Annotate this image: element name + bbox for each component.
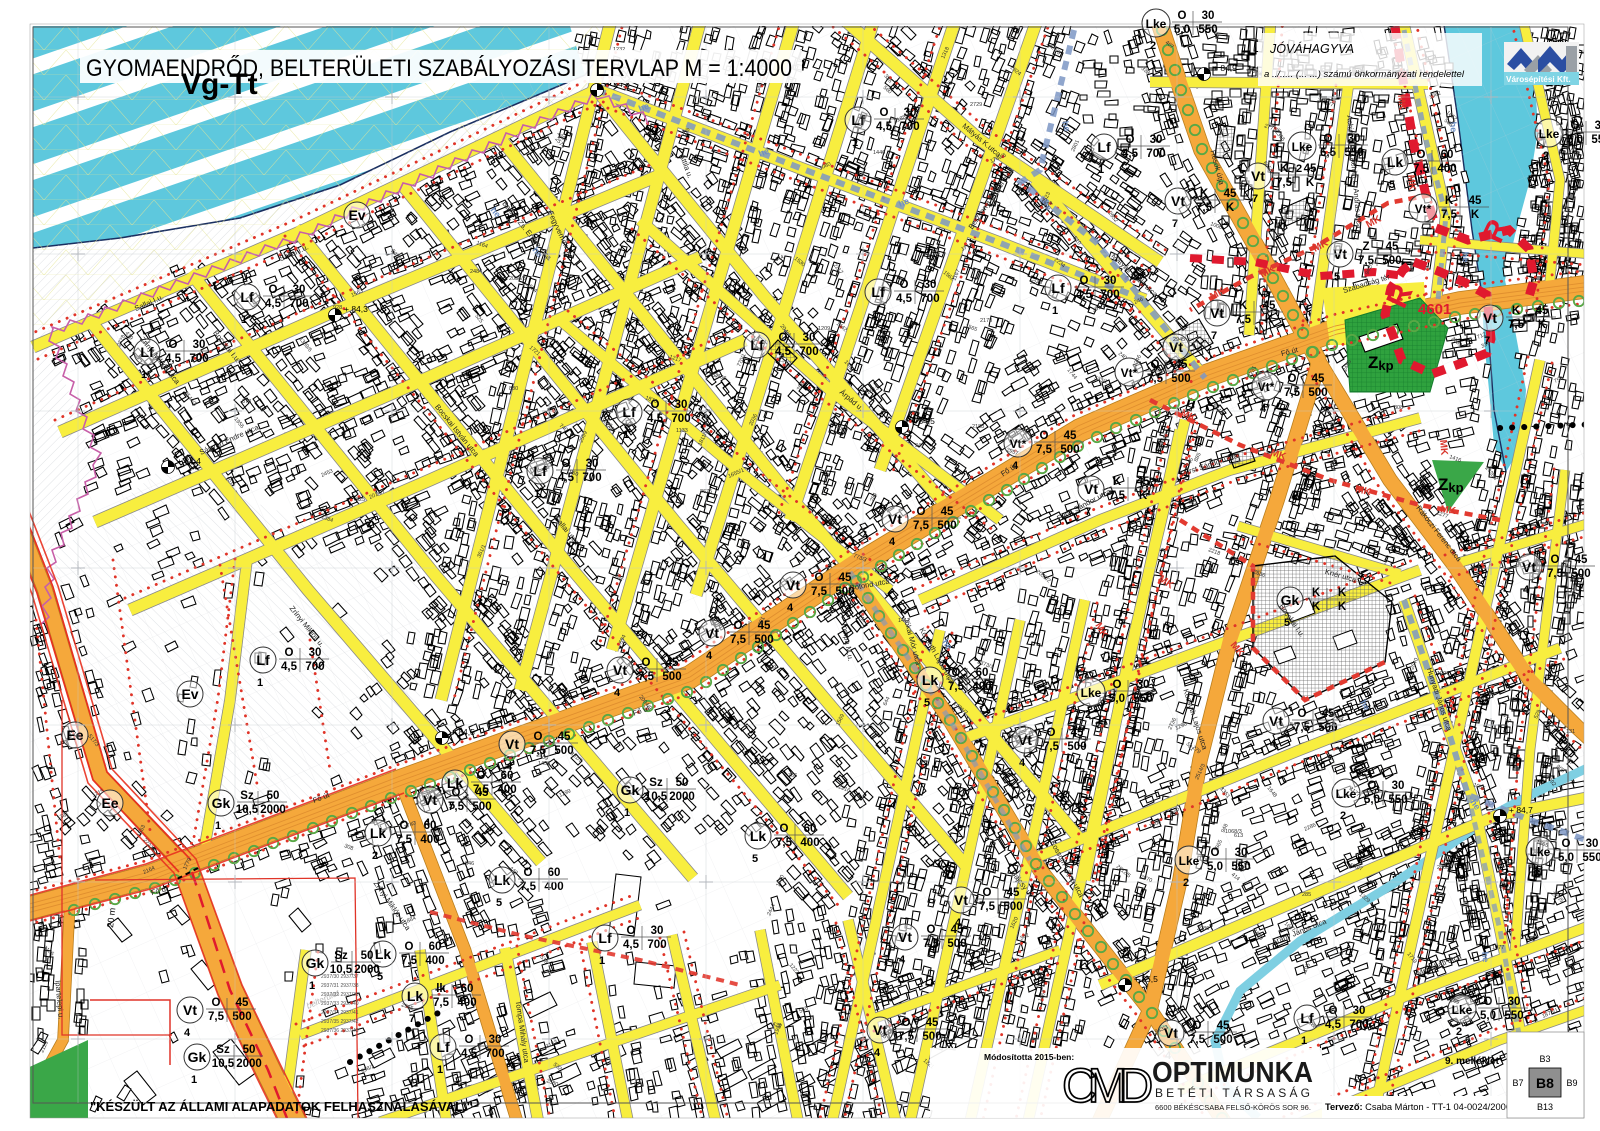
svg-text:9. melléklet: 9. melléklet (1445, 1056, 1500, 1067)
svg-text:+ 85,5: + 85,5 (1134, 974, 1158, 984)
svg-text:30: 30 (309, 647, 322, 659)
svg-text:30: 30 (1235, 847, 1248, 859)
svg-text:45: 45 (1536, 305, 1549, 317)
svg-text:4: 4 (614, 687, 621, 699)
svg-text:1077: 1077 (1492, 945, 1504, 951)
svg-text:O: O (642, 657, 651, 669)
svg-text:K: K (1265, 314, 1274, 326)
svg-text:7,5: 7,5 (1235, 314, 1252, 326)
svg-text:K: K (1512, 305, 1521, 317)
svg-text:7,5: 7,5 (1547, 568, 1564, 580)
svg-text:285: 285 (1302, 892, 1311, 898)
svg-text:7,5: 7,5 (1284, 387, 1301, 399)
svg-text:5,0: 5,0 (1567, 134, 1583, 146)
svg-text:550: 550 (1582, 852, 1600, 864)
svg-text:45: 45 (1575, 554, 1588, 566)
svg-text:Vt: Vt (505, 736, 519, 752)
svg-text:1: 1 (534, 488, 540, 500)
svg-text:4,5: 4,5 (775, 346, 792, 358)
svg-text:500: 500 (937, 520, 956, 532)
svg-text:30: 30 (803, 332, 816, 344)
svg-text:4: 4 (1260, 403, 1267, 415)
svg-text:5,0: 5,0 (1480, 1010, 1496, 1022)
svg-text:Vt: Vt (705, 625, 719, 641)
svg-text:Ev: Ev (181, 686, 198, 702)
svg-text:O: O (1113, 679, 1122, 691)
svg-text:45: 45 (236, 997, 249, 1009)
svg-text:2937/33 2937/40: 2937/33 2937/40 (321, 1001, 359, 1007)
svg-text:Lf: Lf (256, 652, 270, 668)
svg-text:2: 2 (1340, 810, 1346, 822)
svg-text:550: 550 (1133, 693, 1152, 705)
svg-text:Lke: Lke (1292, 140, 1313, 154)
svg-text:30: 30 (1586, 838, 1599, 850)
svg-text:4: 4 (1270, 738, 1277, 750)
svg-text:7: 7 (409, 1013, 415, 1025)
svg-text:550: 550 (1591, 134, 1600, 146)
svg-text:4,5: 4,5 (265, 298, 282, 310)
svg-text:45: 45 (558, 731, 571, 743)
svg-text:2: 2 (1296, 163, 1302, 175)
svg-text:+ 84,9: + 84,9 (1213, 63, 1237, 73)
svg-text:500: 500 (1060, 444, 1079, 456)
svg-text:K: K (1306, 177, 1315, 189)
svg-text:O: O (734, 620, 743, 632)
svg-text:5: 5 (1389, 179, 1395, 191)
svg-text:2000: 2000 (236, 1058, 262, 1070)
svg-text:Sz: Sz (216, 1044, 230, 1056)
svg-text:346: 346 (465, 861, 474, 867)
svg-text:400: 400 (800, 837, 819, 849)
svg-text:700: 700 (647, 939, 666, 951)
svg-text:Lf: Lf (750, 337, 764, 353)
svg-text:Lf: Lf (240, 289, 254, 305)
svg-text:5: 5 (496, 897, 502, 909)
svg-text:O: O (1151, 359, 1160, 371)
svg-text:30: 30 (924, 279, 937, 291)
svg-text:1: 1 (1098, 164, 1104, 176)
svg-text:30: 30 (1202, 10, 1215, 22)
svg-text:60: 60 (461, 983, 474, 995)
svg-text:7,5: 7,5 (401, 955, 418, 967)
svg-text:O: O (1178, 10, 1187, 22)
svg-text:4: 4 (706, 650, 713, 662)
svg-text:Vt: Vt (888, 511, 902, 527)
svg-text:1: 1 (257, 677, 263, 689)
svg-text:4: 4 (899, 954, 906, 966)
svg-text:+ 84,4: + 84,4 (177, 456, 201, 466)
svg-text:1: 1 (624, 807, 630, 819)
svg-text:Z: Z (1362, 241, 1369, 253)
svg-text:K: K (1312, 601, 1321, 613)
svg-text:2178: 2178 (980, 318, 992, 324)
svg-text:4: 4 (889, 536, 896, 548)
svg-text:4: 4 (1523, 584, 1530, 596)
svg-text:45: 45 (1137, 476, 1150, 488)
svg-text:1: 1 (623, 429, 629, 441)
svg-text:4: 4 (424, 817, 431, 829)
svg-text:500: 500 (662, 671, 681, 683)
svg-text:60: 60 (429, 941, 442, 953)
svg-text:O: O (1551, 554, 1560, 566)
svg-text:700: 700 (799, 346, 818, 358)
svg-text:500: 500 (1171, 373, 1190, 385)
svg-text:10,5: 10,5 (212, 1058, 235, 1070)
svg-text:Lke: Lke (1452, 1003, 1473, 1017)
svg-text:2: 2 (1150, 40, 1156, 52)
svg-text:2484: 2484 (470, 269, 482, 275)
svg-text:7,5: 7,5 (776, 837, 793, 849)
svg-text:5,0: 5,0 (1364, 794, 1380, 806)
svg-text:700: 700 (582, 472, 601, 484)
svg-text:2000: 2000 (260, 804, 286, 816)
svg-text:4: 4 (874, 1047, 881, 1059)
svg-text:2000: 2000 (669, 791, 695, 803)
svg-text:Ev: Ev (348, 207, 365, 223)
svg-text:4,5: 4,5 (1325, 1019, 1342, 1031)
svg-text:1209: 1209 (818, 326, 830, 332)
svg-text:3: 3 (1534, 868, 1540, 880)
svg-text:400: 400 (420, 834, 439, 846)
svg-text:7,5: 7,5 (1276, 177, 1293, 189)
svg-text:500: 500 (1213, 1034, 1232, 1046)
svg-text:2: 2 (1183, 877, 1189, 889)
svg-text:Lf: Lf (598, 930, 612, 946)
svg-text:Sz: Sz (649, 777, 663, 789)
svg-text:775/8: 775/8 (1499, 887, 1513, 893)
svg-text:4: 4 (506, 761, 513, 773)
svg-text:766: 766 (788, 773, 797, 779)
svg-text:400: 400 (972, 681, 991, 693)
svg-text:30: 30 (651, 925, 664, 937)
svg-text:Módosította 2015-ben:: Módosította 2015-ben: (984, 1052, 1074, 1062)
svg-text:Vt: Vt (1171, 193, 1185, 209)
svg-text:4,5: 4,5 (647, 413, 664, 425)
svg-text:Lke: Lke (1146, 17, 1167, 31)
svg-text:1: 1 (191, 1074, 197, 1086)
svg-text:7: 7 (1211, 330, 1217, 342)
svg-text:45: 45 (1217, 1020, 1230, 1032)
svg-text:Lf: Lf (533, 463, 547, 479)
svg-text:Sz: Sz (334, 950, 348, 962)
svg-text:30: 30 (193, 339, 206, 351)
svg-text:Vt: Vt (1522, 559, 1536, 575)
svg-text:O: O (815, 572, 824, 584)
svg-text:7,5: 7,5 (1196, 202, 1213, 214)
svg-text:45: 45 (941, 506, 954, 518)
svg-text:7,5: 7,5 (638, 671, 655, 683)
svg-text:Vt*: Vt* (1415, 202, 1432, 216)
svg-text:1: 1 (1052, 305, 1058, 317)
svg-text:K: K (1200, 188, 1209, 200)
svg-text:400: 400 (425, 955, 444, 967)
svg-text:Lf: Lf (871, 284, 885, 300)
svg-text:Lk: Lk (922, 672, 939, 688)
svg-text:O: O (405, 941, 414, 953)
svg-text:+ 84,7: + 84,7 (1509, 805, 1533, 815)
svg-text:700: 700 (1349, 1019, 1368, 1031)
svg-text:1: 1 (852, 137, 858, 149)
svg-text:O: O (880, 107, 889, 119)
svg-text:4,5: 4,5 (623, 939, 640, 951)
svg-text:O: O (1288, 373, 1297, 385)
svg-text:4,5: 4,5 (896, 293, 913, 305)
svg-text:7,5: 7,5 (208, 1011, 225, 1023)
svg-text:7,5: 7,5 (1109, 490, 1126, 502)
svg-text:O: O (900, 279, 909, 291)
svg-text:45: 45 (1469, 195, 1482, 207)
svg-text:5: 5 (1334, 271, 1340, 283)
svg-text:O: O (285, 647, 294, 659)
svg-text:2038/8: 2038/8 (509, 276, 526, 282)
svg-text:7,5: 7,5 (520, 881, 537, 893)
svg-text:1: 1 (241, 314, 247, 326)
svg-text:45: 45 (1064, 430, 1077, 442)
svg-text:Gk: Gk (306, 955, 325, 971)
svg-text:60: 60 (804, 823, 817, 835)
svg-text:lk: lk (436, 983, 446, 995)
svg-text:O: O (927, 924, 936, 936)
svg-text:2986: 2986 (1197, 926, 1209, 932)
svg-text:K: K (1445, 195, 1454, 207)
svg-text:700: 700 (485, 1048, 504, 1060)
svg-text:500: 500 (472, 801, 491, 813)
svg-text:1: 1 (437, 1064, 443, 1076)
svg-text:45: 45 (1175, 359, 1188, 371)
svg-text:O: O (169, 339, 178, 351)
svg-text:50: 50 (676, 777, 689, 789)
svg-text:CMD: CMD (1062, 1060, 1152, 1113)
svg-text:50: 50 (267, 790, 280, 802)
svg-text:Vt*: Vt* (1258, 380, 1275, 394)
svg-text:500: 500 (1003, 901, 1022, 913)
svg-text:30: 30 (1392, 780, 1405, 792)
svg-text:7,5: 7,5 (448, 801, 465, 813)
svg-text:4: 4 (787, 602, 794, 614)
svg-text:O: O (477, 770, 486, 782)
svg-text:Gk: Gk (621, 782, 640, 798)
svg-text:550: 550 (1504, 1010, 1523, 1022)
svg-text:Vt: Vt (898, 929, 912, 945)
svg-text:O: O (534, 731, 543, 743)
svg-text:Gk: Gk (212, 795, 231, 811)
svg-text:B9: B9 (1566, 1078, 1577, 1088)
svg-text:500: 500 (1067, 741, 1086, 753)
svg-text:Lf: Lf (436, 1039, 450, 1055)
svg-text:5,0: 5,0 (1174, 24, 1190, 36)
svg-text:5: 5 (752, 853, 758, 865)
svg-text:45: 45 (1386, 241, 1399, 253)
svg-text:700: 700 (671, 413, 690, 425)
svg-text:Lk: Lk (494, 872, 511, 888)
svg-text:4,5: 4,5 (281, 661, 298, 673)
svg-text:O: O (780, 823, 789, 835)
svg-text:700: 700 (920, 293, 939, 305)
svg-text:30: 30 (1353, 1005, 1366, 1017)
svg-text:Lke: Lke (1539, 127, 1560, 141)
svg-text:K: K (1471, 209, 1480, 221)
svg-text:Lke: Lke (1081, 686, 1102, 700)
svg-text:1: 1 (872, 309, 878, 321)
svg-text:347: 347 (915, 443, 924, 449)
svg-text:O: O (1047, 727, 1056, 739)
svg-text:O: O (465, 1034, 474, 1046)
svg-text:500: 500 (754, 634, 773, 646)
svg-text:2: 2 (1456, 1026, 1462, 1038)
svg-text:2: 2 (1543, 150, 1549, 162)
svg-text:2945: 2945 (1173, 337, 1185, 343)
svg-text:B3: B3 (1539, 1054, 1550, 1064)
svg-text:Vt: Vt (1269, 713, 1283, 729)
svg-text:Lk: Lk (375, 946, 392, 962)
svg-text:Vt: Vt (1251, 168, 1265, 184)
svg-text:2937/31 2937/38: 2937/31 2937/38 (321, 983, 359, 989)
svg-text:30: 30 (1595, 120, 1600, 132)
svg-text:60: 60 (976, 667, 989, 679)
svg-text:1: 1 (1301, 1035, 1307, 1047)
svg-text:Lk: Lk (1387, 154, 1404, 170)
svg-text:400: 400 (1437, 163, 1456, 175)
svg-text:O: O (1417, 149, 1426, 161)
svg-text:2249: 2249 (1030, 280, 1042, 286)
svg-text:547: 547 (1290, 722, 1299, 728)
svg-text:7,5: 7,5 (1189, 1034, 1206, 1046)
svg-text:O: O (1562, 838, 1571, 850)
svg-text:K: K (1113, 476, 1122, 488)
svg-text:he: he (1460, 251, 1471, 262)
svg-text:880: 880 (509, 386, 518, 392)
svg-text:Lk: Lk (370, 825, 387, 841)
svg-text:825: 825 (356, 497, 365, 503)
svg-text:30: 30 (1104, 275, 1117, 287)
svg-text:2937/36 2937/43: 2937/36 2937/43 (321, 1028, 359, 1034)
svg-text:Tervező: Csaba Márton - TT-1: Tervező: Csaba Márton - TT-1 04-0024/200… (1325, 1102, 1511, 1112)
svg-text:60: 60 (548, 867, 561, 879)
svg-text:550: 550 (1388, 794, 1407, 806)
svg-text:+ 84,5: + 84,5 (911, 416, 935, 426)
svg-text:400: 400 (497, 784, 516, 796)
svg-text:4601: 4601 (1418, 301, 1451, 318)
svg-text:500: 500 (1308, 387, 1327, 399)
svg-text:"KÉSZÜLT AZ ÁLLAMI ALAPADATOK: "KÉSZÜLT AZ ÁLLAMI ALAPADATOK FELHASZNÁL… (90, 1099, 473, 1114)
svg-text:+ 84,5: + 84,5 (451, 727, 475, 737)
svg-text:K: K (1280, 163, 1289, 175)
svg-text:1297: 1297 (1437, 671, 1449, 677)
svg-text:10,5: 10,5 (236, 804, 259, 816)
svg-text:700: 700 (305, 661, 324, 673)
svg-text:O: O (902, 1017, 911, 1029)
svg-text:45: 45 (839, 572, 852, 584)
svg-text:4,5: 4,5 (461, 1048, 478, 1060)
svg-text:2937/35 2937/42: 2937/35 2937/42 (321, 1019, 359, 1025)
svg-text:O: O (1571, 120, 1580, 132)
svg-text:1: 1 (309, 980, 315, 992)
svg-text:700: 700 (1100, 289, 1119, 301)
svg-text:O: O (212, 997, 221, 1009)
svg-text:2808: 2808 (1437, 865, 1449, 871)
svg-text:131: 131 (1566, 729, 1575, 735)
svg-text:1446: 1446 (873, 150, 885, 156)
svg-text:Lf: Lf (622, 404, 636, 420)
svg-text:4,5: 4,5 (1122, 148, 1139, 160)
svg-text:45: 45 (476, 787, 489, 799)
svg-text:10,5: 10,5 (645, 791, 668, 803)
svg-text:30: 30 (586, 458, 599, 470)
svg-text:45: 45 (1071, 727, 1084, 739)
svg-text:2937/30 2937/37: 2937/30 2937/37 (321, 974, 359, 980)
svg-text:Vt: Vt (183, 1002, 197, 1018)
svg-text:1133: 1133 (676, 428, 688, 434)
svg-text:2937/32 2937/39: 2937/32 2937/39 (321, 992, 359, 998)
svg-text:30: 30 (1137, 679, 1150, 691)
svg-text:808: 808 (1394, 405, 1403, 411)
svg-text:MK: MK (1405, 174, 1417, 191)
svg-text:1: 1 (215, 820, 221, 832)
svg-text:1: 1 (751, 362, 757, 374)
svg-text:5,0: 5,0 (1207, 861, 1223, 873)
svg-text:2: 2 (372, 850, 378, 862)
svg-text:1412: 1412 (898, 618, 910, 624)
svg-text:K: K (1312, 587, 1321, 599)
svg-text:60: 60 (1441, 149, 1454, 161)
svg-text:2729: 2729 (970, 102, 982, 108)
svg-text:700: 700 (900, 121, 919, 133)
svg-text:4,5: 4,5 (876, 121, 893, 133)
svg-text:O: O (1324, 133, 1333, 145)
svg-text:K: K (1338, 587, 1347, 599)
svg-text:O: O (1193, 1020, 1202, 1032)
svg-text:45: 45 (1263, 300, 1276, 312)
svg-text:30: 30 (1150, 134, 1163, 146)
svg-text:500: 500 (1571, 568, 1590, 580)
svg-text:509: 509 (767, 665, 776, 671)
svg-text:B8: B8 (1536, 1075, 1554, 1091)
svg-text:a ../..... (... ...) számú önk: a ../..... (... ...) számú önkormányzati… (1264, 69, 1465, 80)
svg-text:Lf: Lf (1097, 139, 1111, 155)
svg-text:700: 700 (289, 298, 308, 310)
svg-text:Vt: Vt (1210, 305, 1224, 321)
svg-text:Vg-Tt: Vg-Tt (181, 68, 258, 101)
svg-text:928: 928 (333, 305, 342, 311)
svg-text:45: 45 (1007, 887, 1020, 899)
svg-text:7,5: 7,5 (1413, 163, 1430, 175)
svg-text:B13: B13 (1537, 1102, 1553, 1112)
svg-text:K: K (1139, 490, 1148, 502)
svg-text:Lf: Lf (1051, 280, 1065, 296)
svg-text:O: O (452, 787, 461, 799)
svg-text:MK: MK (1437, 439, 1449, 456)
svg-text:B7: B7 (1512, 1078, 1523, 1088)
svg-text:Vt: Vt (613, 662, 627, 678)
svg-text:Vt: Vt (954, 892, 968, 908)
svg-text:Gk: Gk (188, 1049, 207, 1065)
svg-text:K: K (1338, 601, 1347, 613)
svg-text:7,5: 7,5 (1036, 444, 1053, 456)
svg-text:O: O (1329, 1005, 1338, 1017)
svg-text:O: O (1126, 134, 1135, 146)
svg-text:Városépítési Kft.: Városépítési Kft. (1506, 75, 1571, 84)
svg-text:O: O (1080, 275, 1089, 287)
svg-text:7,5: 7,5 (1043, 741, 1060, 753)
svg-text:7,5: 7,5 (1508, 319, 1525, 331)
svg-text:1458: 1458 (538, 761, 550, 767)
svg-text:45: 45 (1312, 373, 1325, 385)
svg-text:7: 7 (1252, 193, 1258, 205)
svg-text:400: 400 (544, 881, 563, 893)
svg-text:500: 500 (1382, 255, 1401, 267)
svg-text:4,5: 4,5 (1076, 289, 1093, 301)
svg-text:7,5: 7,5 (913, 520, 930, 532)
